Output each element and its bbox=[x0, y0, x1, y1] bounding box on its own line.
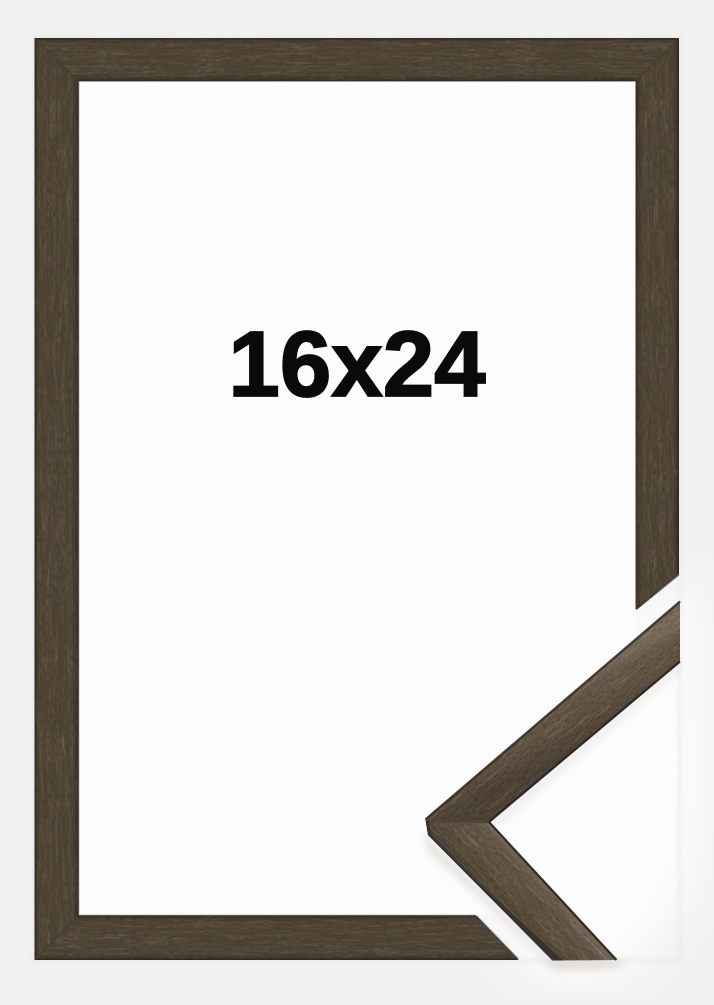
svg-text:16x24: 16x24 bbox=[228, 312, 485, 416]
